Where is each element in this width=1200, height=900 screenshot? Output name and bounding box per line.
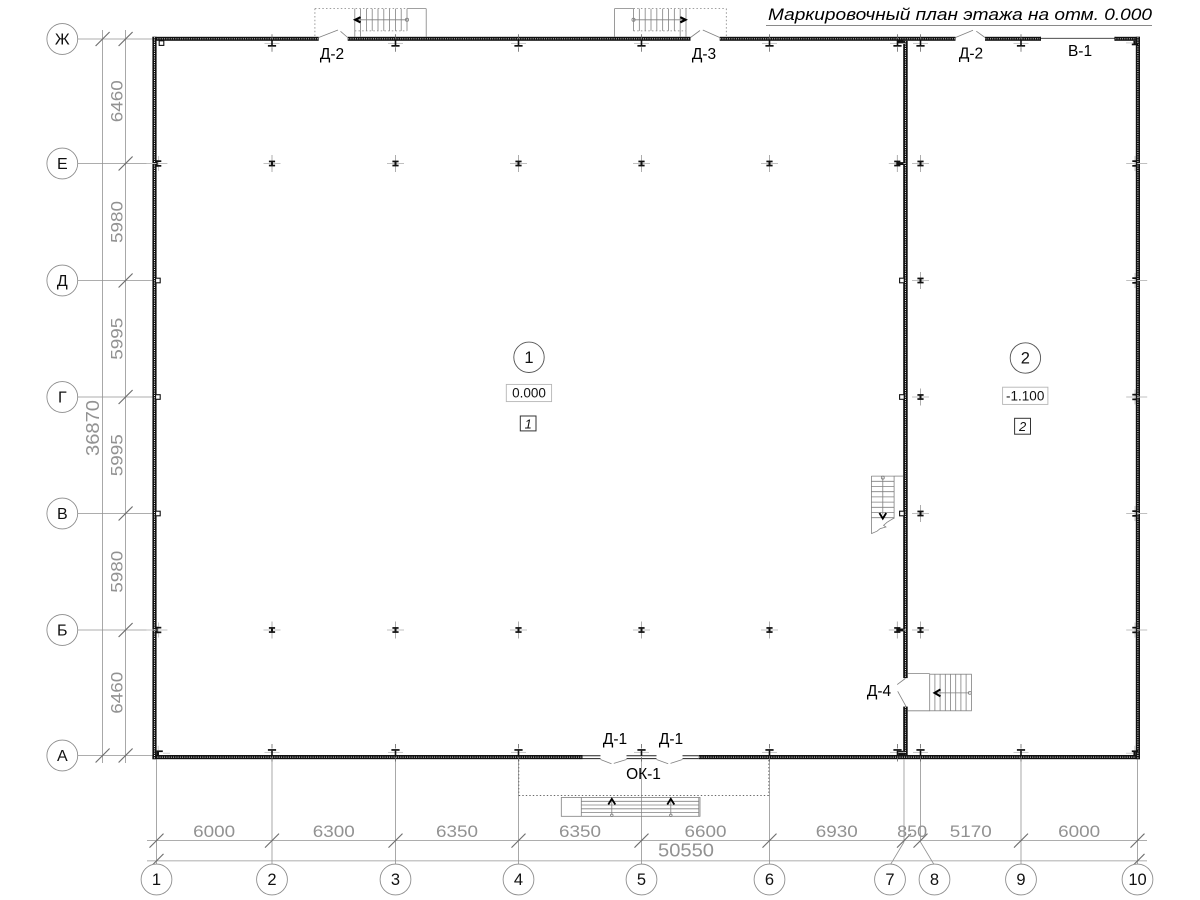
svg-text:850: 850 bbox=[897, 823, 927, 841]
svg-text:ОК-1: ОК-1 bbox=[626, 766, 661, 783]
svg-text:В-1: В-1 bbox=[1068, 43, 1092, 60]
svg-text:Е: Е bbox=[57, 156, 68, 173]
svg-text:6350: 6350 bbox=[436, 823, 478, 841]
svg-text:Д: Д bbox=[57, 273, 68, 290]
svg-text:2: 2 bbox=[1018, 419, 1027, 434]
svg-text:50550: 50550 bbox=[658, 841, 714, 861]
svg-text:1: 1 bbox=[524, 349, 533, 367]
svg-text:-1.100: -1.100 bbox=[1006, 388, 1044, 403]
svg-text:0.000: 0.000 bbox=[512, 386, 546, 401]
svg-text:5170: 5170 bbox=[950, 823, 992, 841]
svg-text:3: 3 bbox=[391, 871, 400, 889]
svg-text:6930: 6930 bbox=[816, 823, 858, 841]
svg-text:Д-1: Д-1 bbox=[659, 731, 683, 748]
svg-text:5995: 5995 bbox=[109, 434, 127, 476]
svg-text:Г: Г bbox=[58, 389, 67, 406]
svg-text:6: 6 bbox=[765, 871, 774, 889]
svg-text:Б: Б bbox=[57, 622, 68, 639]
svg-text:4: 4 bbox=[514, 871, 523, 889]
svg-text:Ж: Ж bbox=[55, 31, 70, 48]
svg-text:6600: 6600 bbox=[685, 823, 727, 841]
svg-text:2: 2 bbox=[267, 871, 276, 889]
svg-text:6000: 6000 bbox=[193, 823, 235, 841]
svg-text:6300: 6300 bbox=[313, 823, 355, 841]
svg-text:5995: 5995 bbox=[109, 318, 127, 360]
svg-text:2: 2 bbox=[1021, 350, 1030, 368]
svg-text:5: 5 bbox=[637, 871, 646, 889]
svg-text:6460: 6460 bbox=[109, 80, 127, 122]
svg-text:Д-2: Д-2 bbox=[320, 46, 344, 63]
svg-text:36870: 36870 bbox=[83, 400, 103, 456]
svg-text:5980: 5980 bbox=[109, 201, 127, 243]
svg-text:10: 10 bbox=[1128, 871, 1146, 889]
svg-text:1: 1 bbox=[152, 871, 161, 889]
svg-text:7: 7 bbox=[885, 871, 894, 889]
svg-text:А: А bbox=[57, 748, 68, 765]
svg-text:6350: 6350 bbox=[559, 823, 601, 841]
svg-text:6000: 6000 bbox=[1058, 823, 1100, 841]
svg-text:Д-2: Д-2 bbox=[959, 46, 983, 63]
svg-text:В: В bbox=[57, 506, 68, 523]
svg-text:Д-1: Д-1 bbox=[603, 731, 627, 748]
svg-text:Д-3: Д-3 bbox=[692, 46, 716, 63]
svg-text:Маркировочный план этажа на от: Маркировочный план этажа на отм. 0.000 bbox=[768, 5, 1153, 24]
svg-text:Д-4: Д-4 bbox=[867, 683, 892, 700]
svg-text:1: 1 bbox=[525, 416, 532, 431]
svg-text:5980: 5980 bbox=[109, 551, 127, 593]
svg-text:6460: 6460 bbox=[109, 672, 127, 714]
svg-text:9: 9 bbox=[1016, 871, 1025, 889]
svg-text:8: 8 bbox=[930, 871, 939, 889]
